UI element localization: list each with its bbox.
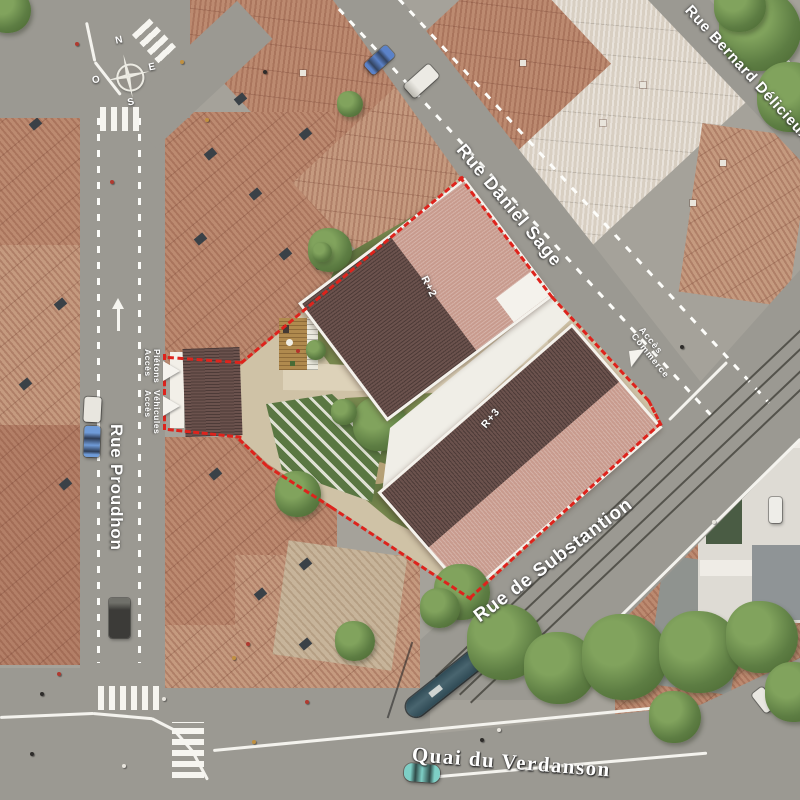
street-tree [337,91,363,117]
street-tree [649,691,701,743]
roof-block-west-3 [0,425,82,665]
street-label-proudhon: Rue Proudhon [106,424,126,551]
lane-arrow-up [112,298,124,331]
garden-bush [331,399,357,425]
pedestrian-dot [30,752,34,756]
lane-dashes [98,118,101,663]
terrace-flower-pot [296,349,300,353]
chimney [690,200,696,206]
pedestrian-dot [712,520,716,524]
pedestrian-dot [480,738,484,742]
compass-rose-icon: N E S O [90,38,166,114]
terrace-table [286,339,293,346]
garden-bush [306,340,326,360]
aerial-site-plan-map: Accès Piétons Accès Véhicules Accès Comm… [0,0,800,800]
compass-letter-s: S [126,96,135,108]
chimney [600,120,606,126]
pedestrian-dot [263,70,267,74]
terrace-chair [290,361,295,366]
chimney [720,160,726,166]
chimney [640,82,646,88]
access-commerce-arrow-icon [629,349,647,367]
access-vehicules-word-vehicules: Véhicules [152,390,162,434]
access-pedestrian-arrow-icon [163,361,180,381]
car-blue-proudhon [83,426,100,458]
pedestrian-dot [205,118,209,122]
pedestrian-dot [122,764,126,768]
pedestrian-dot [680,345,684,349]
access-pietons-word-pietons: Piétons [152,349,162,383]
pedestrian-dot [305,700,309,704]
chimney [520,60,526,66]
roof-block-west-2 [0,245,82,425]
chimney [300,70,306,76]
pedestrian-dot [252,740,256,744]
access-vehicle-arrow-icon [163,396,180,416]
pedestrian-dot [57,672,61,676]
pedestrian-dot [180,60,184,64]
pedestrian-dot [110,180,114,184]
pedestrian-dot [497,728,501,732]
street-tree [420,588,460,628]
roof-block-topright [679,123,800,307]
lane-dashes [139,118,142,663]
street-tree [582,614,668,700]
street-tree [312,242,332,262]
van-white-proudhon [83,397,101,423]
van-dark-proudhon [109,598,130,638]
pedestrian-dot [246,642,250,646]
pedestrian-dot [40,692,44,696]
compass-letter-e: E [148,61,157,73]
van-white-east [769,497,782,523]
pedestrian-dot [162,697,166,701]
street-tree [335,621,375,661]
crosswalk-bottom-diagonal [172,722,204,778]
compass-letter-o: O [91,74,101,86]
pedestrian-dot [75,42,79,46]
pedestrian-dot [232,656,236,660]
crosswalk-proudhon-bottom [98,686,160,710]
